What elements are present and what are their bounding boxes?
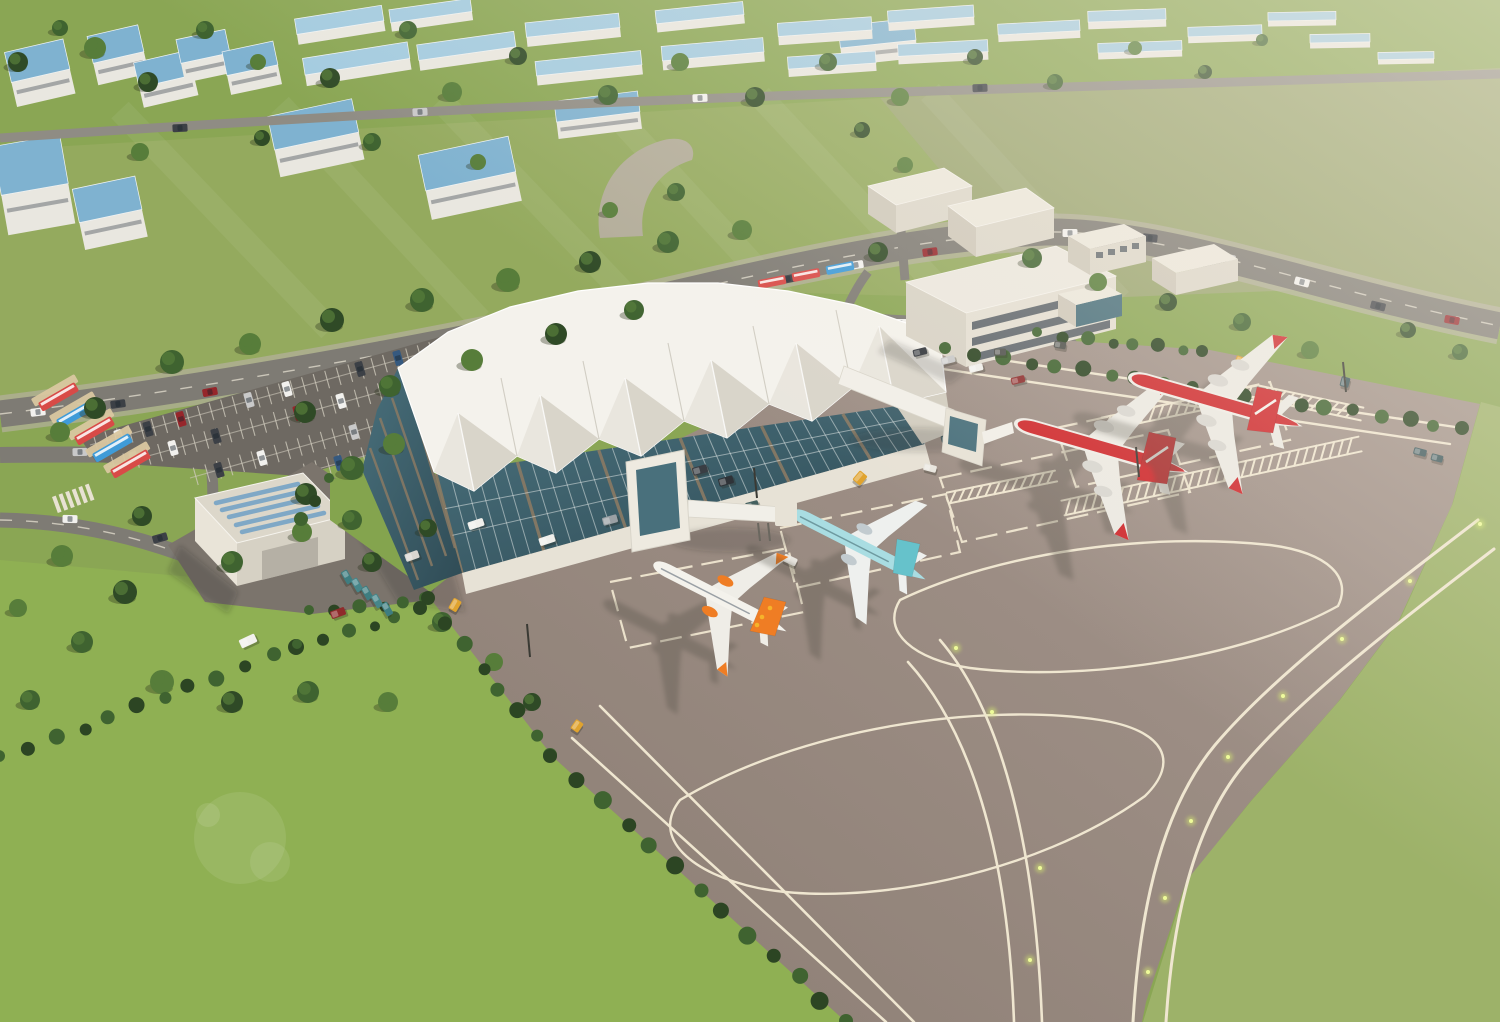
airport-aerial-render <box>0 0 1500 1022</box>
scene-canvas <box>0 0 1500 1022</box>
